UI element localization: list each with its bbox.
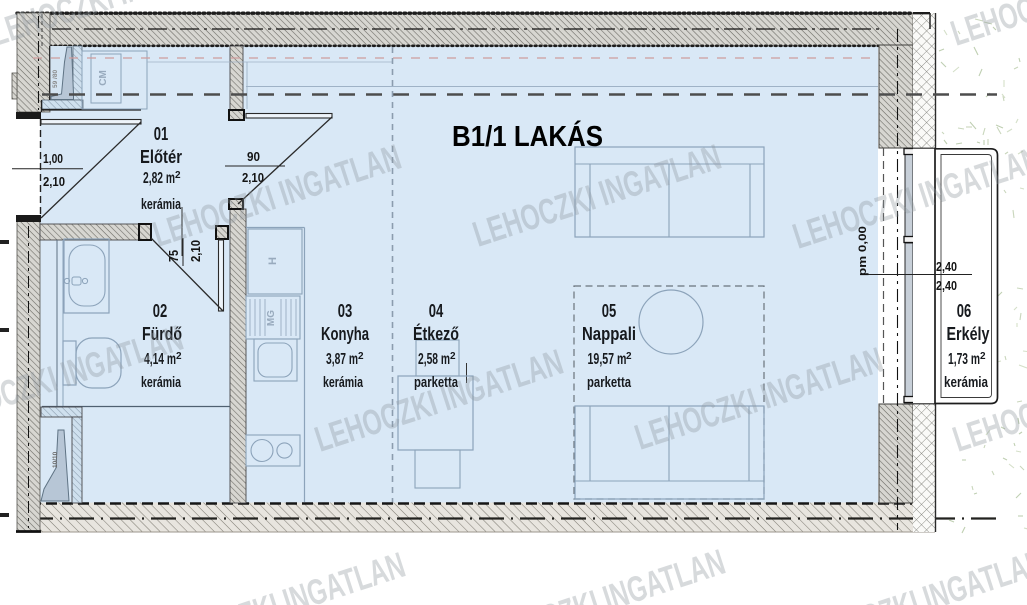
svg-text:2: 2 xyxy=(175,170,181,181)
svg-text:B1/1 LAKÁS: B1/1 LAKÁS xyxy=(452,119,603,153)
svg-text:H: H xyxy=(267,257,279,265)
svg-text:1,00: 1,00 xyxy=(43,151,63,166)
svg-text:MG: MG xyxy=(266,310,277,326)
svg-text:01: 01 xyxy=(154,124,169,144)
svg-text:2,40: 2,40 xyxy=(936,278,957,293)
svg-text:2,40: 2,40 xyxy=(936,259,957,274)
svg-text:kerámia: kerámia xyxy=(944,374,989,391)
svg-text:Étkező: Étkező xyxy=(413,323,459,344)
svg-text:CM: CM xyxy=(98,70,109,86)
svg-text:02: 02 xyxy=(153,301,168,321)
svg-text:Konyha: Konyha xyxy=(321,324,370,344)
svg-text:kerámia: kerámia xyxy=(323,374,363,391)
svg-text:04: 04 xyxy=(429,301,444,321)
svg-text:05: 05 xyxy=(602,301,617,321)
svg-text:kerámia: kerámia xyxy=(141,374,181,391)
svg-text:90: 90 xyxy=(247,149,260,164)
svg-text:2: 2 xyxy=(450,351,456,362)
svg-text:06: 06 xyxy=(957,301,972,321)
svg-text:Előtér: Előtér xyxy=(140,147,182,167)
svg-text:1,73 m: 1,73 m xyxy=(948,351,980,368)
svg-text:10/10: 10/10 xyxy=(52,451,59,468)
svg-text:2,10: 2,10 xyxy=(43,174,65,189)
svg-text:Nappali: Nappali xyxy=(582,324,636,344)
svg-text:03: 03 xyxy=(338,301,353,321)
svg-text:parketta: parketta xyxy=(587,374,631,391)
svg-text:3,87 m: 3,87 m xyxy=(326,351,358,368)
svg-text:19,57 m: 19,57 m xyxy=(588,351,627,368)
svg-text:2,82 m: 2,82 m xyxy=(143,170,175,187)
svg-text:2: 2 xyxy=(980,351,986,362)
svg-text:59 /80: 59 /80 xyxy=(52,70,59,88)
svg-text:2: 2 xyxy=(358,351,364,362)
svg-text:Erkély: Erkély xyxy=(947,324,990,344)
svg-text:2,58 m: 2,58 m xyxy=(418,351,450,368)
svg-text:2: 2 xyxy=(626,351,632,362)
